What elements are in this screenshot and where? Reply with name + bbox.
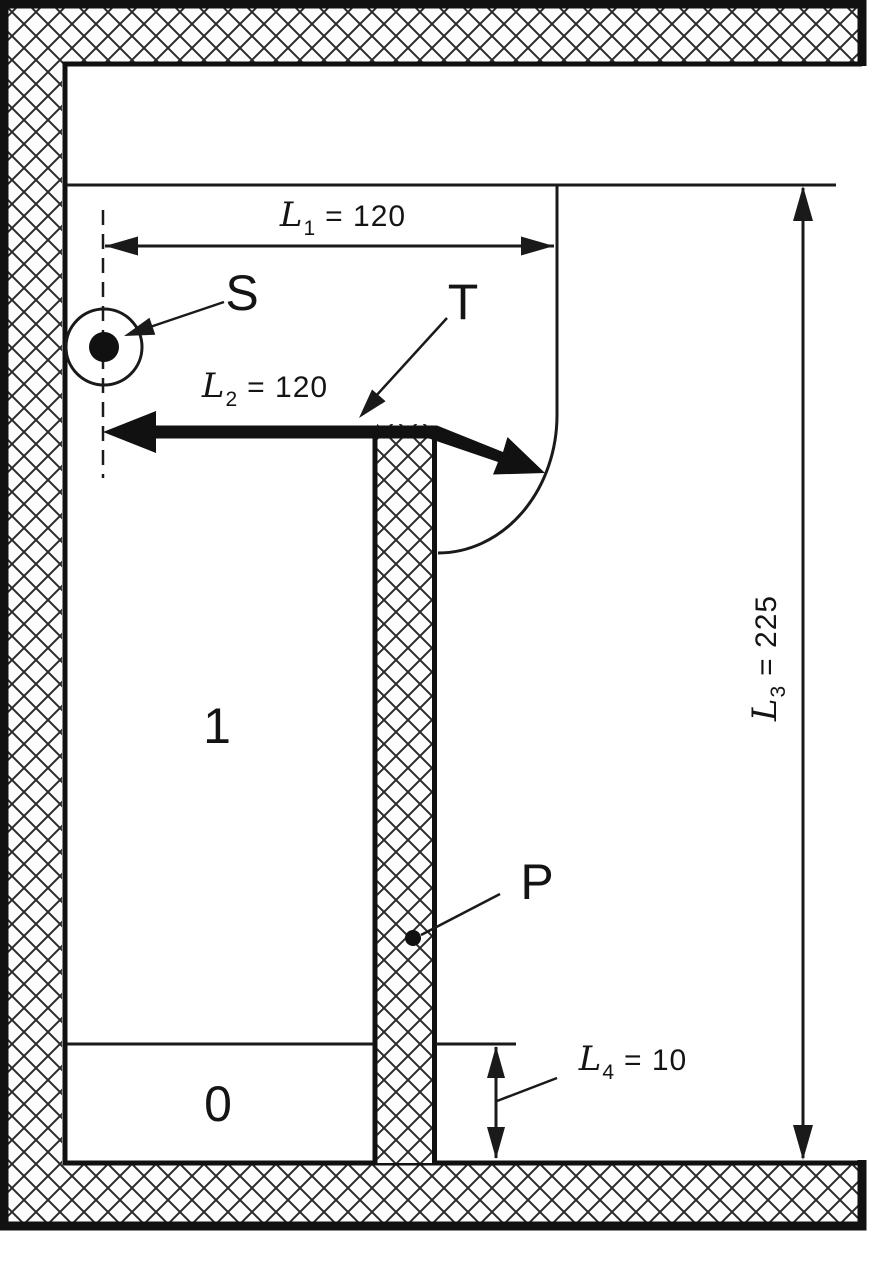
dim-value: = 120 bbox=[247, 373, 328, 403]
dimension-arrowhead-left bbox=[105, 237, 138, 256]
inner-wall-border bbox=[65, 64, 862, 1163]
technical-diagram: L1= 120 L2= 120 L3= 225 L4= 10 S T P 1 0 bbox=[0, 0, 880, 1270]
transmission-path-arrow bbox=[103, 411, 545, 475]
top-wall-hatch bbox=[8, 8, 858, 66]
dim-value: = 120 bbox=[325, 202, 406, 232]
source-label: S bbox=[225, 268, 258, 318]
partition bbox=[375, 424, 435, 1163]
dim-symbol: L bbox=[202, 369, 225, 403]
dimension-label-l4: L4= 10 bbox=[579, 1042, 688, 1076]
source-dot bbox=[89, 332, 119, 362]
dim-subscript: 3 bbox=[768, 686, 789, 698]
dimension-l3 bbox=[793, 186, 813, 1160]
dimension-label-l1: L1= 120 bbox=[280, 198, 406, 232]
dimension-arrowhead-down bbox=[487, 1127, 505, 1159]
source-leader-arrow bbox=[124, 302, 224, 336]
dimension-l1 bbox=[105, 237, 554, 256]
dim-symbol: L bbox=[748, 699, 782, 722]
partition-dot bbox=[405, 930, 421, 946]
dim-symbol: L bbox=[579, 1042, 602, 1076]
dimension-l4 bbox=[487, 1046, 557, 1159]
dim-subscript: 1 bbox=[303, 218, 315, 239]
partition-hatch bbox=[377, 424, 433, 1163]
bottom-wall-hatch bbox=[8, 1163, 858, 1222]
dim-value: = 10 bbox=[624, 1046, 687, 1076]
dimension-label-l3: L3= 225 bbox=[748, 595, 782, 721]
left-wall-hatch bbox=[8, 8, 62, 1222]
dimension-l4-leader bbox=[497, 1078, 557, 1101]
curved-inlet-edge bbox=[438, 185, 557, 553]
dimension-arrowhead-up bbox=[487, 1046, 505, 1078]
region-label-upper: 1 bbox=[203, 701, 231, 751]
dim-subscript: 4 bbox=[602, 1062, 614, 1083]
dim-value: = 225 bbox=[752, 595, 782, 676]
transmission-path-label: T bbox=[448, 277, 479, 327]
leader-arrowhead bbox=[124, 318, 155, 336]
partition-label: P bbox=[520, 857, 553, 907]
dim-subscript: 2 bbox=[225, 389, 237, 410]
region-label-lower: 0 bbox=[204, 1079, 232, 1129]
dimension-arrowhead-bottom bbox=[793, 1125, 813, 1160]
dim-symbol: L bbox=[280, 198, 303, 232]
leader-arrowhead bbox=[359, 390, 386, 419]
dimension-label-l2: L2= 120 bbox=[202, 369, 328, 403]
path-leader-arrow bbox=[359, 318, 447, 418]
dimension-arrowhead-right bbox=[521, 237, 554, 256]
dimension-arrowhead-top bbox=[793, 186, 813, 221]
